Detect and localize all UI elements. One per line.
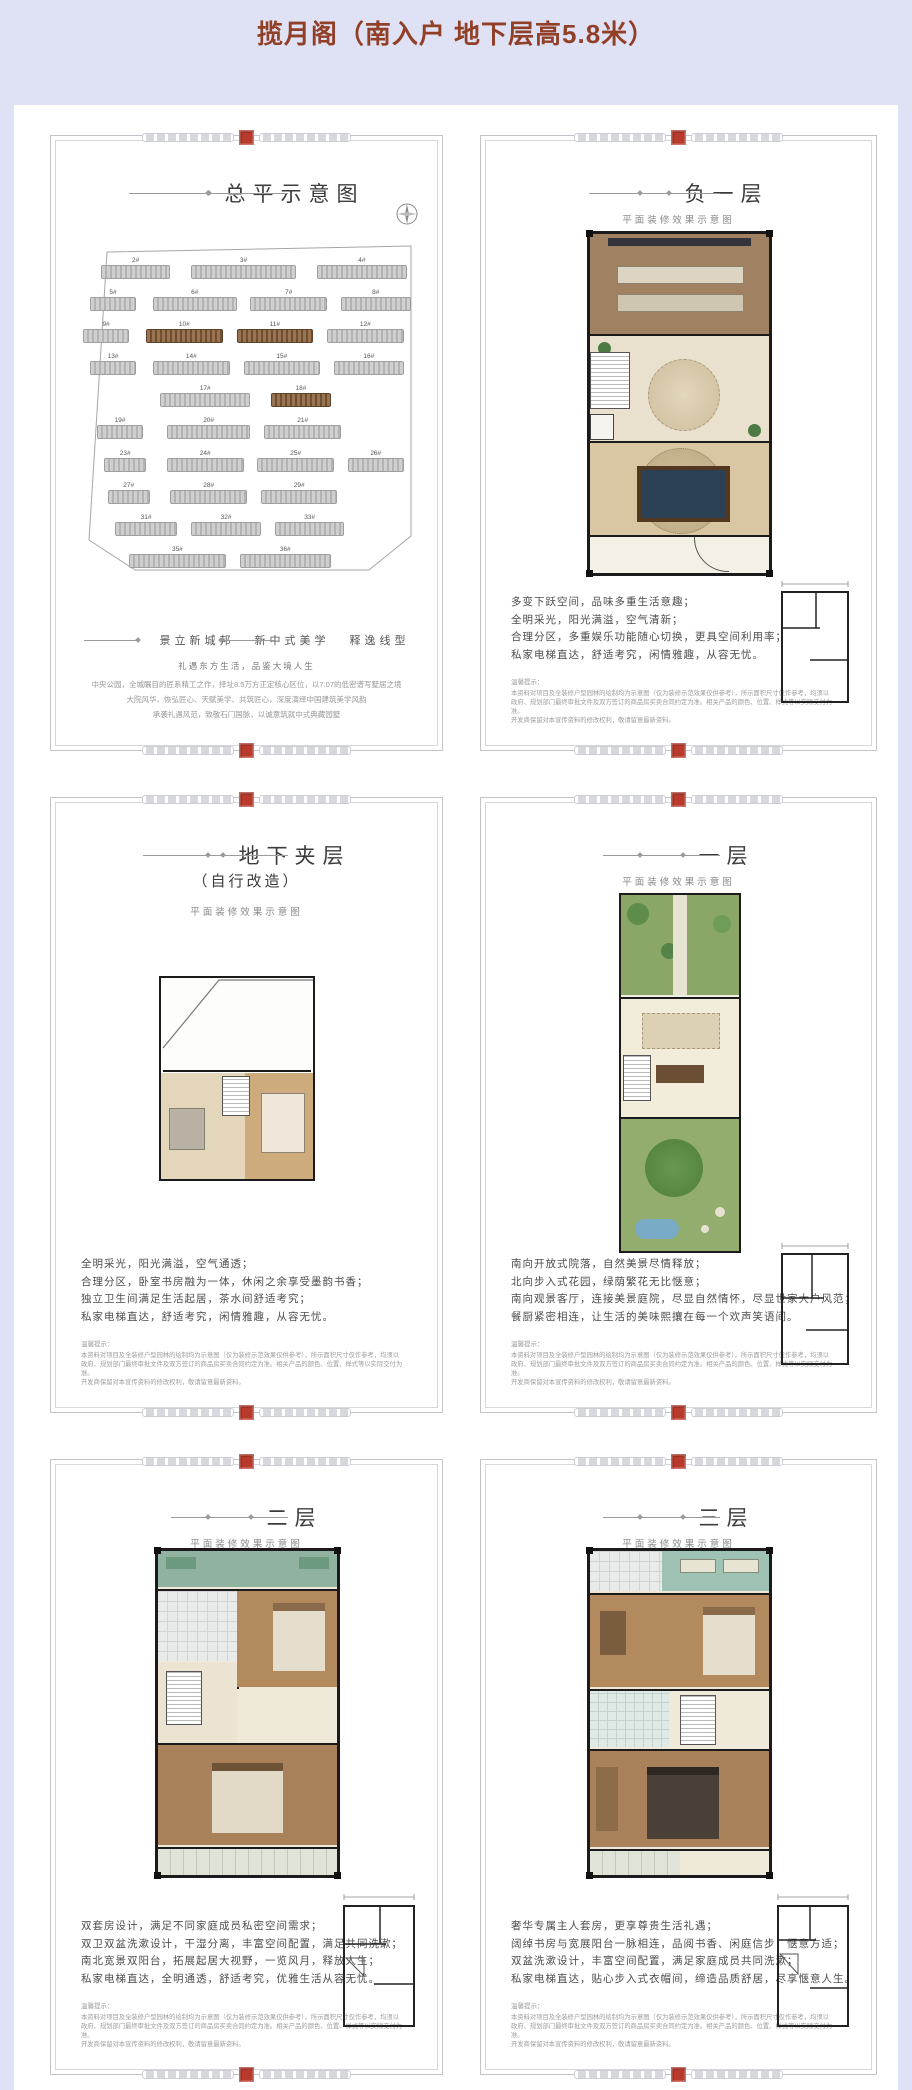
staircase [166, 1671, 202, 1725]
building-block [167, 458, 244, 472]
building-block [244, 361, 321, 375]
bed [273, 1603, 325, 1671]
building-21: 21# [264, 417, 341, 439]
building-label: 12# [327, 321, 404, 328]
building-label: 26# [348, 450, 404, 457]
bed [703, 1607, 755, 1675]
stepping-stone [701, 1225, 709, 1233]
border-ornament-bottom [51, 743, 442, 758]
lounge-chair [723, 1559, 759, 1573]
lounge-chair [680, 1559, 716, 1573]
building-32: 32# [191, 514, 261, 536]
red-seal-icon [239, 130, 254, 145]
page-header: 揽月阁（南入户 地下层高5.8米） [0, 0, 912, 105]
building-9: 9# [83, 321, 128, 343]
column [766, 1872, 773, 1879]
border-ornament-top [51, 792, 442, 807]
building-block [264, 425, 341, 439]
site-plan-map: 2#3#4#5#6#7#8#9#10#11#12#13#14#15#16#17#… [73, 240, 421, 578]
building-label: 35# [129, 546, 226, 553]
building-label: 9# [83, 321, 128, 328]
planter [299, 1557, 329, 1569]
desc-line: 全明采光，阳光满溢，空气通透； [81, 1256, 369, 1274]
desc-line: 全明采光，阳光满溢，空气清新； [511, 612, 787, 630]
description: 全明采光，阳光满溢，空气通透； 合理分区，卧室书房融为一体，休闲之余享受墨韵书香… [81, 1256, 369, 1326]
south-balcony [590, 1851, 680, 1875]
flourish-line [84, 640, 140, 641]
red-seal-icon [239, 743, 254, 758]
staircase [222, 1076, 250, 1116]
building-block [191, 265, 295, 279]
panel-third-floor: 三层 平面装修效果示意图 奢 [480, 1459, 877, 2075]
building-25: 25# [257, 450, 334, 472]
building-3: 3# [191, 257, 295, 279]
floor-plan-third [587, 1548, 772, 1878]
floor-plan-mezzanine [159, 976, 315, 1181]
building-block [261, 490, 338, 504]
building-label: 14# [153, 353, 230, 360]
building-14: 14# [153, 353, 230, 375]
building-block [153, 361, 230, 375]
intro-line: 大院风华、恢弘匠心、天赋美学、共筑匠心，深度演绎中国建筑美学风韵 [51, 692, 442, 707]
staircase [623, 1055, 651, 1101]
red-seal-icon [239, 1405, 254, 1420]
building-label: 6# [153, 289, 237, 296]
building-block [240, 554, 330, 568]
building-label: 16# [334, 353, 404, 360]
panel-mezzanine: 地下夹层 （自行改造） 平面装修效果示意图 全明采光，阳光满溢，空气通透； 合理… [50, 797, 443, 1413]
floor-plan-basement [587, 231, 772, 576]
bead-ornament [259, 795, 351, 804]
building-block [146, 329, 223, 343]
building-block [271, 393, 330, 407]
intro-paragraph: 中央公园，全城瞩目的匠系精工之作，择址8.5万方正定核心区位，以7.07的低密谱… [51, 677, 442, 722]
red-seal-icon [239, 2067, 254, 2082]
building-label: 19# [97, 417, 142, 424]
border-ornament-bottom [51, 2067, 442, 2082]
bead-ornament [574, 1457, 666, 1466]
building-block [341, 297, 411, 311]
building-16: 16# [334, 353, 404, 375]
bead-ornament [574, 133, 666, 142]
building-33: 33# [275, 514, 345, 536]
dining-table [656, 1065, 703, 1083]
column [334, 1547, 341, 1554]
floor-plan-first [619, 893, 741, 1253]
building-block [115, 522, 178, 536]
building-label: 7# [250, 289, 327, 296]
building-label: 15# [244, 353, 321, 360]
building-6: 6# [153, 289, 237, 311]
bathroom [590, 1551, 662, 1591]
building-23: 23# [104, 450, 146, 472]
bead-ornament [142, 133, 234, 142]
bead-ornament [259, 1457, 351, 1466]
panel-title-row: 负一层 [481, 178, 876, 208]
building-label: 29# [261, 482, 338, 489]
border-ornament-top [51, 130, 442, 145]
garden-path [673, 895, 687, 995]
bead-ornament [574, 1408, 666, 1417]
red-seal-icon [671, 792, 686, 807]
building-block [250, 297, 327, 311]
building-label: 10# [146, 321, 223, 328]
panel-title-row: 三层 [481, 1502, 876, 1532]
bead-ornament [142, 1457, 234, 1466]
building-10: 10# [146, 321, 223, 343]
red-seal-icon [671, 743, 686, 758]
building-block [170, 490, 247, 504]
column [766, 570, 773, 577]
building-label: 27# [108, 482, 150, 489]
building-block [129, 554, 226, 568]
slogan-row: 景立新城邦 新中式美学 释逸线型 [51, 632, 442, 648]
border-ornament-bottom [51, 1405, 442, 1420]
building-block [317, 265, 407, 279]
bead-ornament [574, 746, 666, 755]
column [154, 1872, 161, 1879]
border-ornament-top [481, 1454, 876, 1469]
flourish-line [129, 193, 211, 194]
building-block [237, 329, 314, 343]
panel-title-row: 地下夹层 [51, 840, 442, 870]
bead-ornament [259, 1408, 351, 1417]
intro-line: 中央公园，全城瞩目的匠系精工之作，择址8.5万方正定核心区位，以7.07的低密谱… [51, 677, 442, 692]
border-ornament-top [481, 130, 876, 145]
panel-first-floor: 一层 平面装修效果示意图 南向开放式院落，自然美景尽情释放； 北向步入式花园，绿… [480, 797, 877, 1413]
flourish-line [219, 640, 275, 641]
panel-second-floor: 二层 平面装修效果示意图 双套房设计，满足不同家庭成员私 [50, 1459, 443, 2075]
entry-hall [590, 537, 769, 573]
building-label: 25# [257, 450, 334, 457]
flourish-line [638, 193, 720, 194]
bead-ornament [691, 133, 783, 142]
sofa [169, 1108, 205, 1150]
building-label: 3# [191, 257, 295, 264]
panel-title-row: 二层 [51, 1502, 442, 1532]
column [586, 1872, 593, 1879]
desc-line: 合理分区，卧室书房融为一体，休闲之余享受墨韵书香； [81, 1274, 369, 1292]
building-label: 18# [271, 385, 330, 392]
building-block [104, 458, 146, 472]
column [154, 1547, 161, 1554]
building-block [327, 329, 404, 343]
building-block [160, 393, 250, 407]
flourish-line [206, 1517, 288, 1518]
building-label: 31# [115, 514, 178, 521]
building-26: 26# [348, 450, 404, 472]
bead-ornament [691, 1457, 783, 1466]
panel-site-plan: 总平示意图 2#3#4#5#6#7#8#9#10#11#12#13#14#15#… [50, 135, 443, 751]
key-plan-diagram [770, 1892, 856, 2032]
flourish-line [638, 855, 720, 856]
page-title: 揽月阁（南入户 地下层高5.8米） [257, 14, 655, 51]
elevator [590, 414, 614, 440]
key-plan-diagram [776, 1242, 856, 1370]
flourish-line [638, 1517, 720, 1518]
building-label: 11# [237, 321, 314, 328]
intro-line: 承袭礼遇风范，致敬石门国脉，以诚意筑就中式典藏园墅 [51, 707, 442, 722]
page: 揽月阁（南入户 地下层高5.8米） 总平示意图 2#3#4#5#6#7#8#9#… [0, 0, 912, 2090]
plant-icon [748, 424, 761, 437]
panel-subtitle: 平面装修效果示意图 [481, 212, 876, 226]
disclaimer-title: 温馨提示： [81, 1338, 411, 1348]
panel-subtitle: 平面装修效果示意图 [51, 904, 442, 918]
building-block [334, 361, 404, 375]
building-2: 2# [101, 257, 171, 279]
building-block [101, 265, 171, 279]
south-balcony [158, 1849, 337, 1875]
building-35: 35# [129, 546, 226, 568]
round-rug [648, 359, 720, 431]
building-13: 13# [90, 353, 135, 375]
bead-ornament [142, 1408, 234, 1417]
flourish-line [206, 855, 288, 856]
billiard-table [637, 466, 731, 522]
desc-line: 合理分区，多重娱乐功能随心切换，更具空间利用率； [511, 629, 787, 647]
building-block [348, 458, 404, 472]
bead-ornament [259, 746, 351, 755]
flourish-line [206, 193, 288, 194]
building-block [108, 490, 150, 504]
column [334, 1872, 341, 1879]
building-4: 4# [317, 257, 407, 279]
building-label: 23# [104, 450, 146, 457]
walk-in-closet [596, 1767, 618, 1831]
building-5: 5# [90, 289, 135, 311]
bead-ornament [574, 795, 666, 804]
building-block [83, 329, 128, 343]
bead-ornament [259, 133, 351, 142]
planter [166, 1557, 196, 1569]
red-seal-icon [671, 1405, 686, 1420]
staircase [680, 1695, 716, 1745]
building-label: 24# [167, 450, 244, 457]
building-7: 7# [250, 289, 327, 311]
building-block [191, 522, 261, 536]
building-block [90, 297, 135, 311]
column [586, 570, 593, 577]
bead-ornament [142, 746, 234, 755]
desc-line: 独立卫生间满足生活起居，茶水间舒适考究； [81, 1291, 369, 1309]
building-20: 20# [167, 417, 251, 439]
building-block [153, 297, 237, 311]
panel-title-row: 一层 [481, 840, 876, 870]
building-27: 27# [108, 482, 150, 504]
building-31: 31# [115, 514, 178, 536]
screen-wall [608, 238, 751, 246]
bead-ornament [574, 2070, 666, 2079]
bead-ornament [691, 2070, 783, 2079]
bed [212, 1763, 284, 1833]
bead-ornament [142, 795, 234, 804]
bathroom [158, 1591, 237, 1661]
column [766, 230, 773, 237]
bead-ornament [142, 2070, 234, 2079]
building-17: 17# [160, 385, 250, 407]
bead-ornament [691, 1408, 783, 1417]
living-rug [642, 1013, 720, 1049]
building-label: 8# [341, 289, 411, 296]
building-11: 11# [237, 321, 314, 343]
panel-title-row: 总平示意图 [51, 178, 442, 208]
border-ornament-top [481, 792, 876, 807]
sofa-row [617, 294, 744, 312]
double-vanity-bath [590, 1691, 669, 1747]
master-bed [647, 1767, 719, 1839]
bed [261, 1093, 305, 1153]
building-8: 8# [341, 289, 411, 311]
red-seal-icon [239, 792, 254, 807]
bead-ornament [691, 795, 783, 804]
building-label: 33# [275, 514, 345, 521]
building-36: 36# [240, 546, 330, 568]
building-18: 18# [271, 385, 330, 407]
pond [635, 1219, 679, 1239]
building-label: 32# [191, 514, 261, 521]
tree-icon [713, 915, 731, 933]
key-plan-diagram [336, 1892, 422, 2032]
large-tree-icon [645, 1139, 703, 1197]
building-15: 15# [244, 353, 321, 375]
red-seal-icon [671, 130, 686, 145]
void-area [161, 978, 313, 1073]
tree-icon [627, 903, 649, 925]
desc-line: 私家电梯直达，舒适考究，闲情雅趣，从容无忧。 [511, 647, 787, 665]
staircase [590, 352, 630, 409]
building-block [97, 425, 142, 439]
disclaimer: 温馨提示： 本资料对项目及全装修户型园林的绘制均为示意图（仅为装修示范效果仅供参… [81, 1338, 411, 1387]
red-seal-icon [671, 1454, 686, 1469]
building-24: 24# [167, 450, 244, 472]
tagline: 礼遇东方生活，品鉴大境人生 [51, 660, 442, 672]
building-label: 17# [160, 385, 250, 392]
sofa-row [617, 266, 744, 284]
building-label: 4# [317, 257, 407, 264]
description: 多变下跃空间，品味多重生活意趣； 全明采光，阳光满溢，空气清新； 合理分区，多重… [511, 594, 787, 664]
slogan-part: 释逸线型 [350, 632, 410, 648]
home-theater-room [590, 234, 769, 334]
stepping-stone [715, 1207, 725, 1217]
building-12: 12# [327, 321, 404, 343]
building-block [275, 522, 345, 536]
column [586, 230, 593, 237]
building-label: 28# [170, 482, 247, 489]
red-seal-icon [671, 2067, 686, 2082]
building-28: 28# [170, 482, 247, 504]
border-ornament-bottom [481, 1405, 876, 1420]
building-label: 5# [90, 289, 135, 296]
building-block [90, 361, 135, 375]
building-29: 29# [261, 482, 338, 504]
bead-ornament [691, 746, 783, 755]
panel-basement: 负一层 平面装修效果示意图 [480, 135, 877, 751]
border-ornament-top [51, 1454, 442, 1469]
building-19: 19# [97, 417, 142, 439]
panel-title-second-line: （自行改造） [51, 870, 442, 891]
border-ornament-bottom [481, 743, 876, 758]
desc-line: 私家电梯直达，舒适考究，闲情雅趣，从容无忧。 [81, 1309, 369, 1327]
red-seal-icon [239, 1454, 254, 1469]
bookshelf [600, 1611, 626, 1655]
floor-plan-second [155, 1548, 340, 1878]
border-ornament-bottom [481, 2067, 876, 2082]
building-block [167, 425, 251, 439]
building-label: 20# [167, 417, 251, 424]
panel-subtitle: 平面装修效果示意图 [481, 874, 876, 888]
building-label: 21# [264, 417, 341, 424]
building-label: 36# [240, 546, 330, 553]
bead-ornament [259, 2070, 351, 2079]
building-label: 13# [90, 353, 135, 360]
building-block [257, 458, 334, 472]
building-label: 2# [101, 257, 171, 264]
column [766, 1547, 773, 1554]
compass-icon [395, 202, 419, 226]
desc-line: 多变下跃空间，品味多重生活意趣； [511, 594, 787, 612]
key-plan-diagram [776, 580, 856, 708]
column [586, 1547, 593, 1554]
